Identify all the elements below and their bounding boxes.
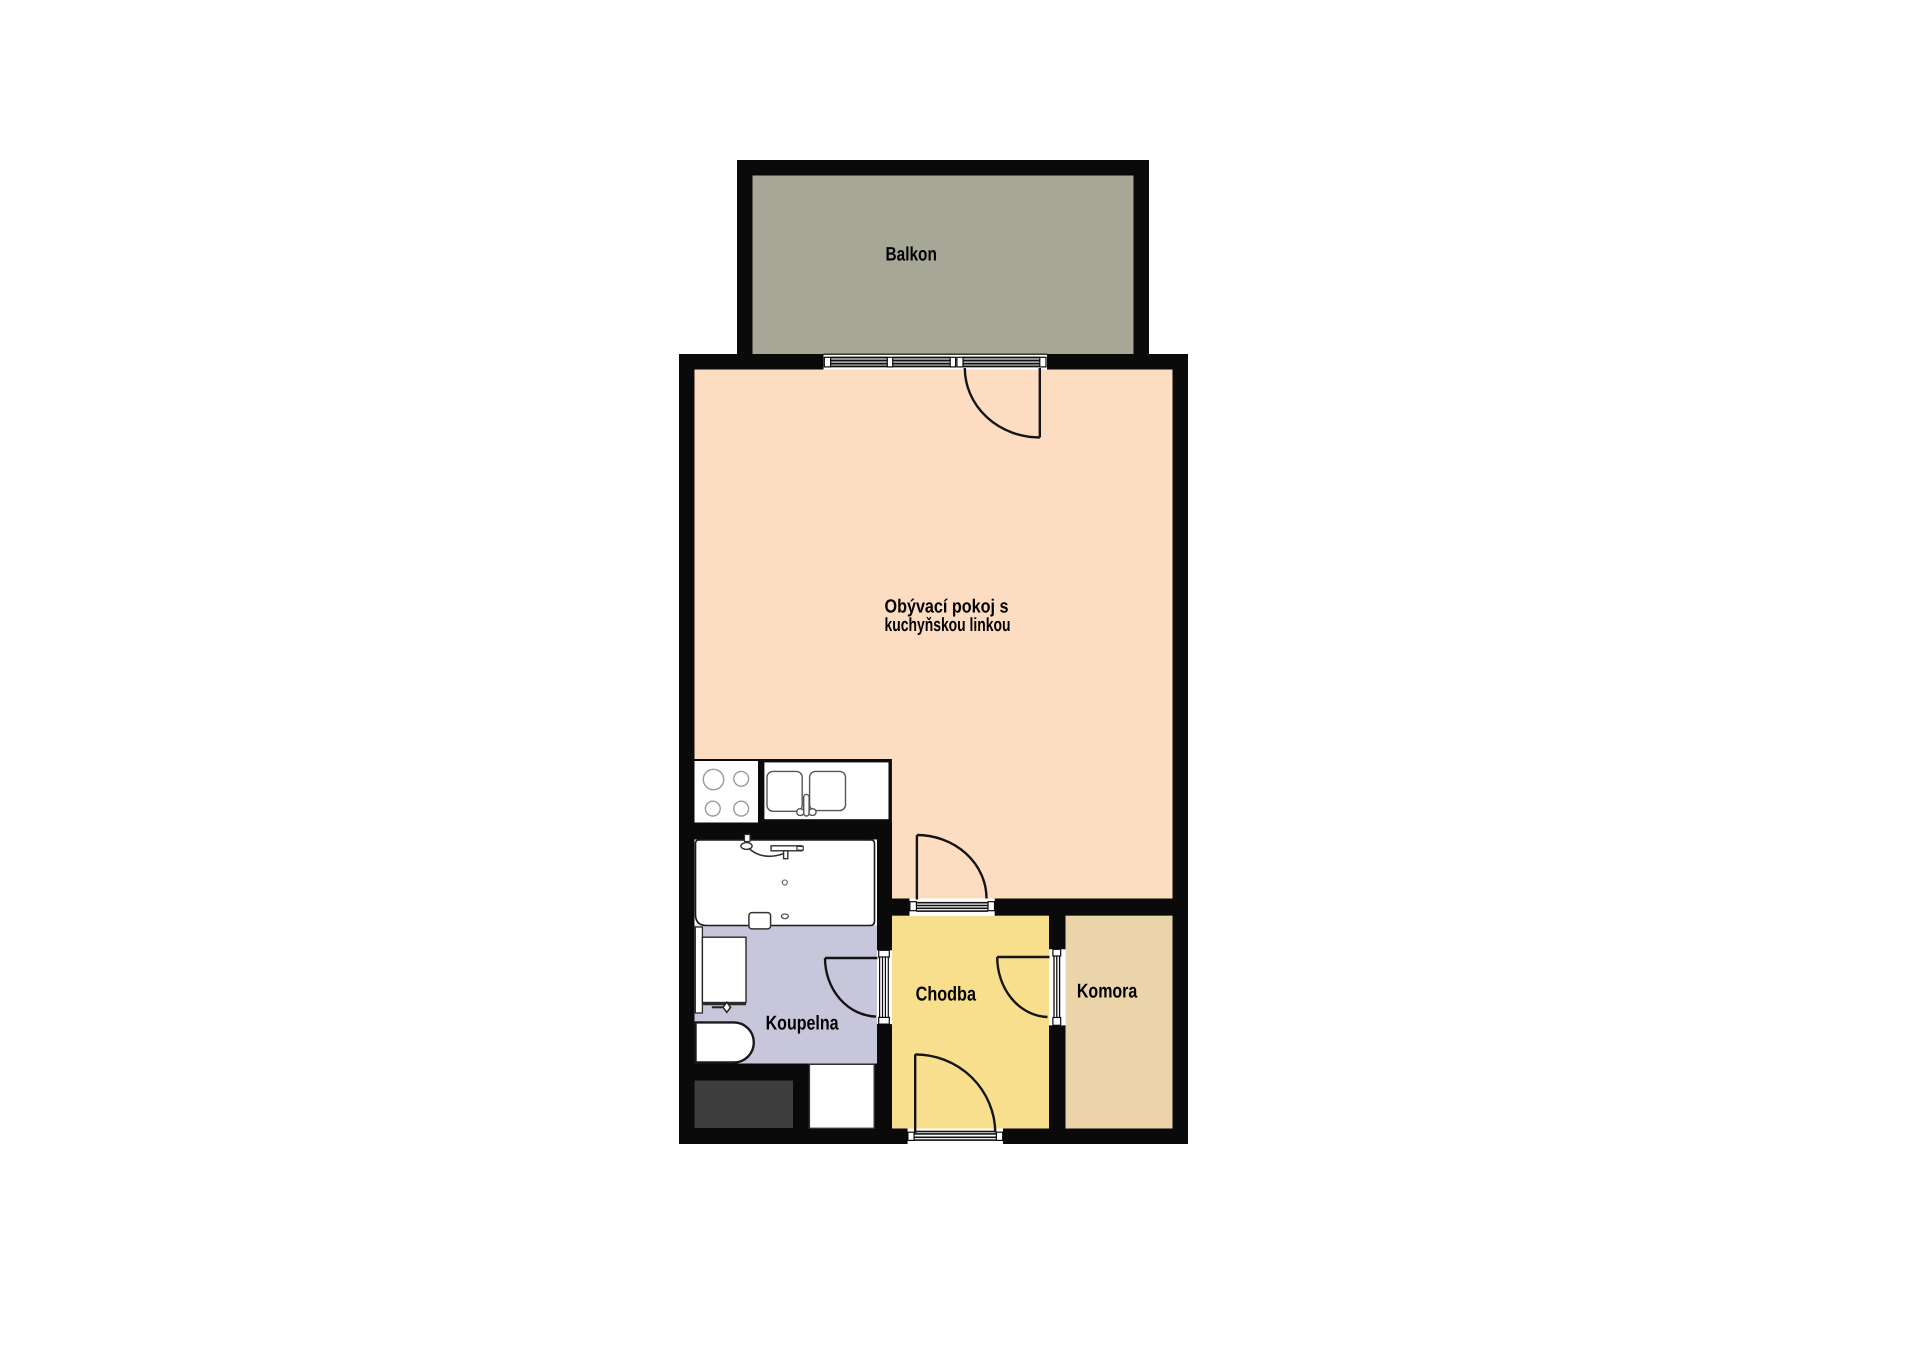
svg-text:Komora: Komora <box>1077 981 1138 1003</box>
svg-text:Balkon: Balkon <box>886 244 937 266</box>
svg-text:Koupelna: Koupelna <box>766 1012 840 1034</box>
svg-text:kuchyňskou linkou: kuchyňskou linkou <box>885 615 1011 636</box>
svg-text:Chodba: Chodba <box>916 984 977 1006</box>
